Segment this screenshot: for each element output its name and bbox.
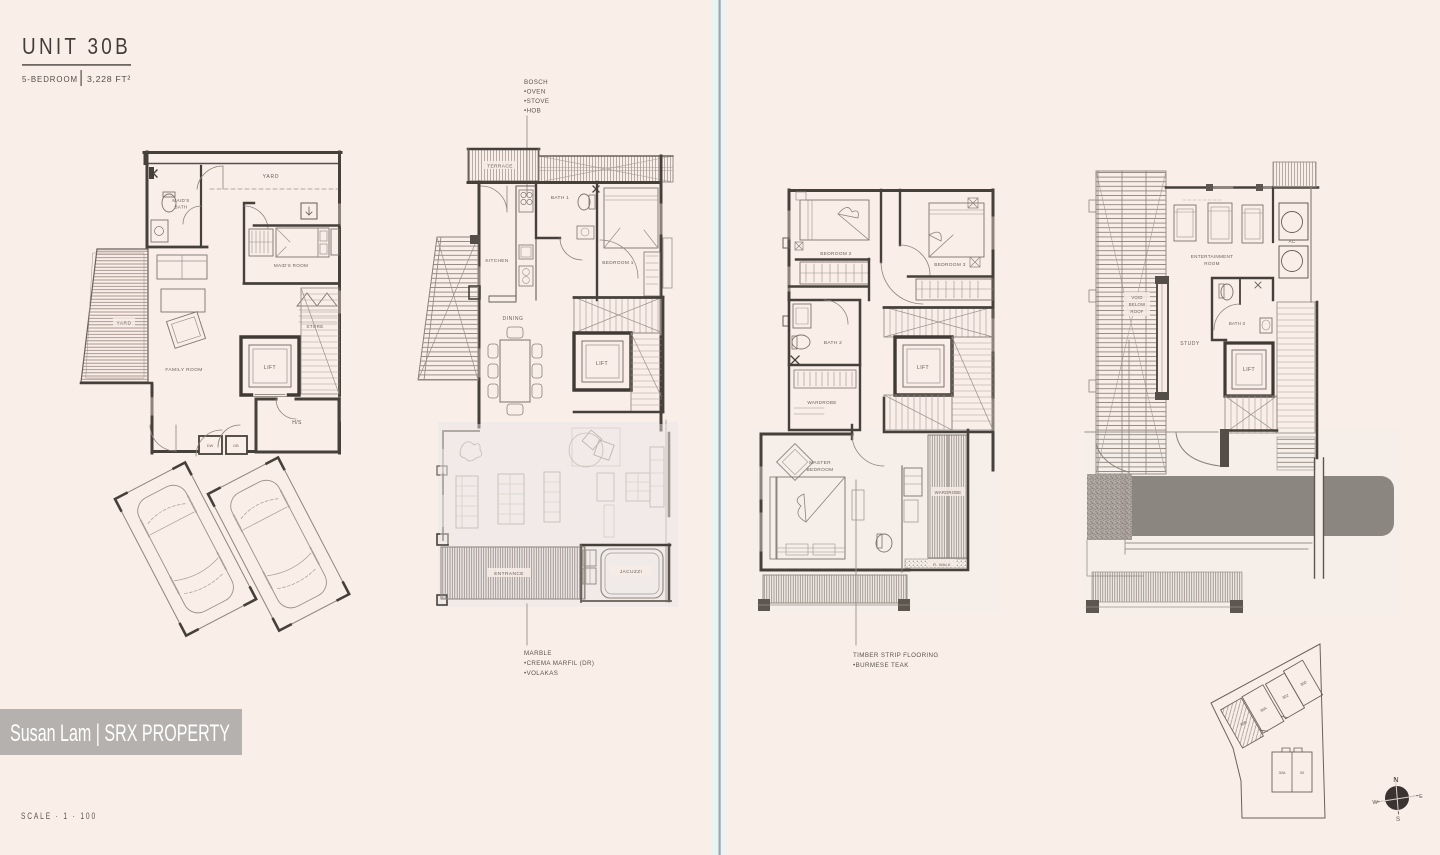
svg-text:3,228 FT²: 3,228 FT² (87, 74, 131, 84)
svg-text:LIFT: LIFT (264, 365, 276, 371)
svg-text:•CREMA MARFIL (DR): •CREMA MARFIL (DR) (524, 660, 594, 667)
svg-text:VOID: VOID (1131, 295, 1142, 300)
svg-text:30A: 30A (1278, 770, 1285, 775)
svg-text:BOSCH: BOSCH (524, 79, 548, 86)
svg-text:TERRACE: TERRACE (487, 164, 513, 170)
svg-text:Susan Lam | SRX PROPERTY: Susan Lam | SRX PROPERTY (10, 720, 230, 747)
svg-text:BATH 1: BATH 1 (551, 195, 569, 201)
svg-text:•BURMESE TEAK: •BURMESE TEAK (853, 662, 909, 669)
svg-text:YARD: YARD (117, 321, 132, 327)
svg-text:BEDROOM 3: BEDROOM 3 (934, 262, 966, 268)
svg-text:JACUZZI: JACUZZI (620, 569, 643, 575)
svg-text:BATH 3: BATH 3 (1229, 321, 1246, 326)
svg-text:ROOF: ROOF (1130, 309, 1143, 314)
svg-text:LIFT: LIFT (1243, 367, 1255, 373)
svg-text:DB: DB (233, 444, 239, 448)
svg-text:5-BEDROOM: 5-BEDROOM (22, 74, 78, 84)
svg-text:BEDROOM 2: BEDROOM 2 (820, 251, 852, 257)
svg-text:WARDROBE: WARDROBE (807, 400, 836, 405)
svg-text:DW: DW (207, 444, 214, 448)
svg-text:ENTRANCE: ENTRANCE (494, 571, 524, 577)
svg-text:•VOLAKAS: •VOLAKAS (524, 670, 558, 677)
svg-text:N: N (1393, 775, 1398, 784)
svg-text:ROOM: ROOM (1204, 261, 1220, 266)
svg-text:MASTER: MASTER (809, 460, 831, 466)
svg-text:W: W (1372, 800, 1378, 806)
svg-text:DINING: DINING (502, 316, 523, 322)
svg-text:BEDROOM: BEDROOM (807, 467, 834, 473)
svg-text:KITCHEN: KITCHEN (485, 258, 508, 264)
svg-text:AC: AC (1289, 239, 1296, 244)
svg-text:BELOW: BELOW (1129, 302, 1146, 307)
svg-text:MAID'S: MAID'S (172, 198, 189, 203)
svg-text:SCALE · 1 · 100: SCALE · 1 · 100 (21, 811, 97, 821)
svg-text:BEDROOM 1: BEDROOM 1 (602, 260, 634, 266)
svg-text:E: E (1419, 794, 1423, 800)
svg-text:S: S (1396, 817, 1400, 823)
svg-text:BATH: BATH (174, 205, 187, 210)
svg-text:R. WALK: R. WALK (933, 562, 951, 567)
svg-text:ENTERTAINMENT: ENTERTAINMENT (1191, 254, 1234, 259)
svg-text:FAMILY ROOM: FAMILY ROOM (165, 367, 202, 373)
svg-text:MARBLE: MARBLE (524, 650, 552, 657)
svg-text:STUDY: STUDY (1180, 341, 1200, 347)
svg-text:LIFT: LIFT (917, 365, 929, 371)
svg-text:BATH 2: BATH 2 (824, 340, 842, 346)
svg-text:YARD: YARD (263, 174, 280, 180)
svg-text:UNIT 30B: UNIT 30B (22, 33, 131, 59)
svg-text:WARDROBE: WARDROBE (935, 490, 962, 495)
svg-text:LIFT: LIFT (596, 361, 608, 367)
svg-text:H/S: H/S (292, 420, 302, 426)
svg-text:•HOB: •HOB (524, 108, 541, 115)
svg-text:TIMBER STRIP FLOORING: TIMBER STRIP FLOORING (853, 652, 939, 659)
svg-text:•OVEN: •OVEN (524, 89, 546, 96)
svg-text:MAID'S ROOM: MAID'S ROOM (274, 263, 308, 268)
svg-text:•STOVE: •STOVE (524, 98, 549, 105)
svg-text:30: 30 (1300, 770, 1305, 775)
